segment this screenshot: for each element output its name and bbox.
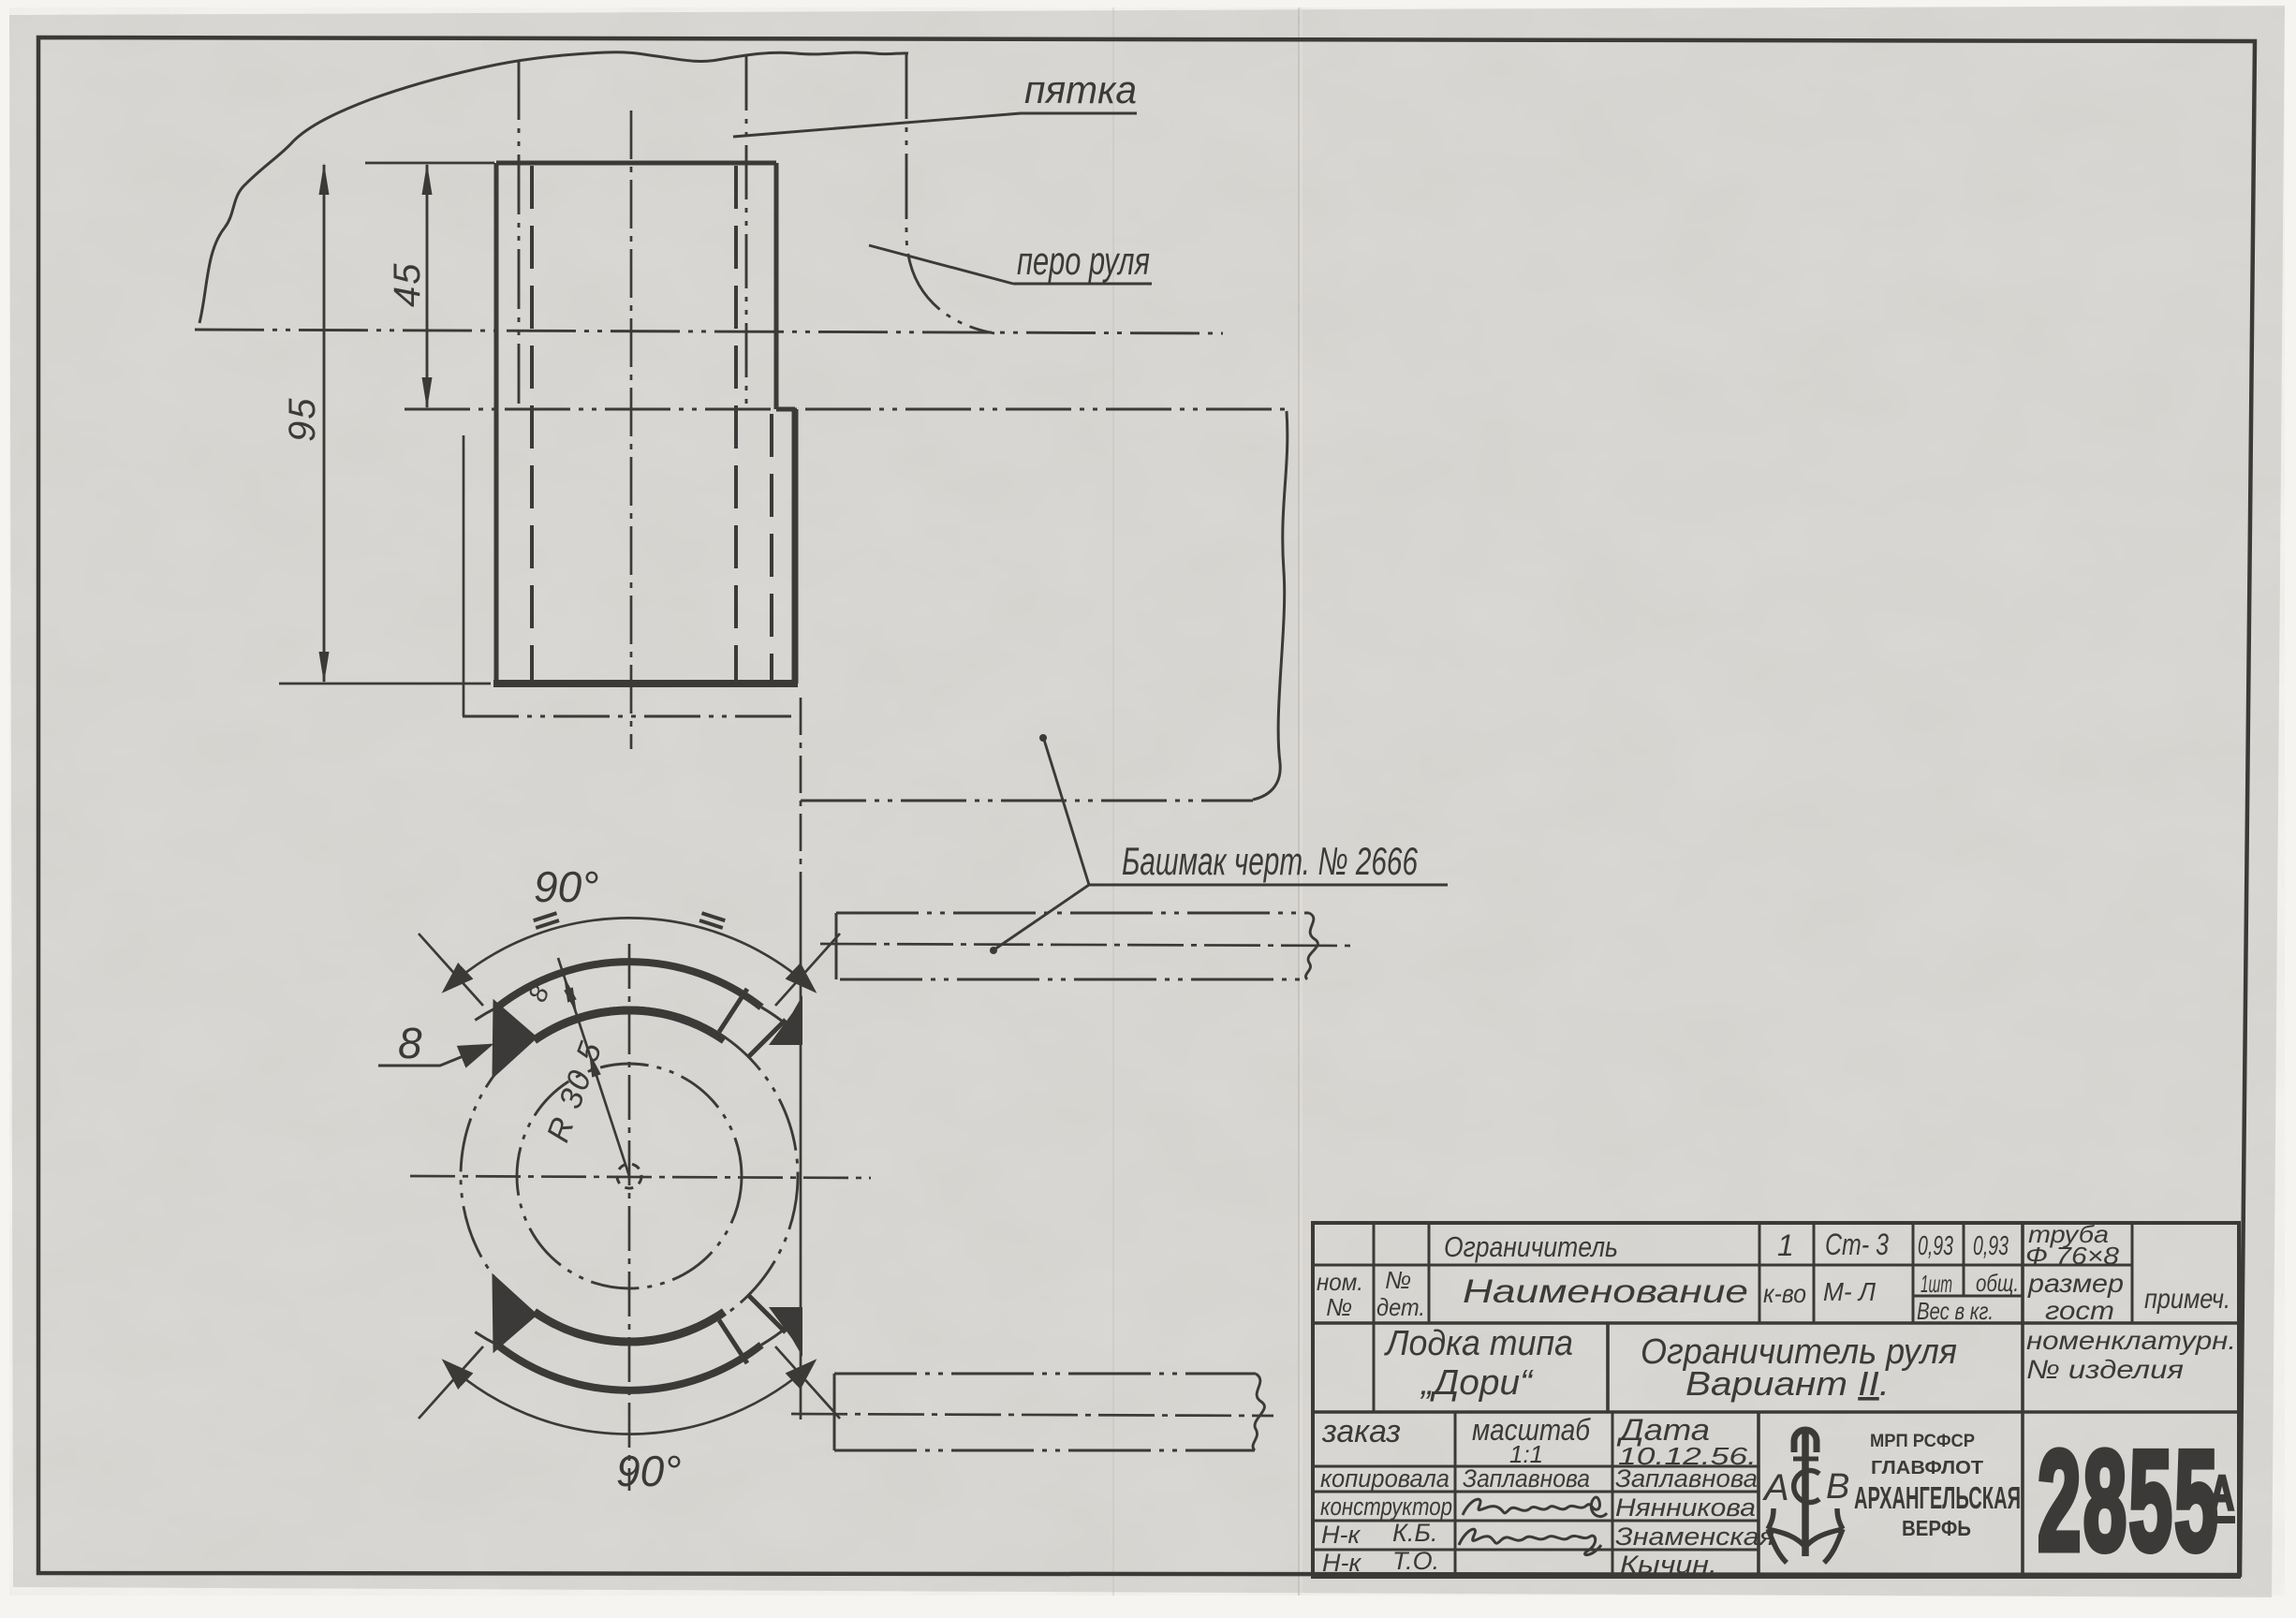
svg-text:0,93: 0,93 [1918, 1231, 1953, 1261]
svg-text:ГЛАВФЛОТ: ГЛАВФЛОТ [1871, 1458, 1983, 1478]
svg-text:Кычин.: Кычин. [1620, 1551, 1717, 1579]
svg-text:Заплавнова: Заплавнова [1463, 1464, 1590, 1493]
svg-text:90°: 90° [616, 1447, 682, 1495]
svg-text:дет.: дет. [1376, 1293, 1425, 1321]
svg-text:Знаменская: Знаменская [1615, 1522, 1774, 1551]
svg-text:К.Б.: К.Б. [1392, 1519, 1438, 1547]
svg-text:перо руля: перо руля [1017, 239, 1150, 283]
svg-text:А: А [2210, 1466, 2234, 1521]
svg-text:Н-к: Н-к [1321, 1521, 1361, 1549]
svg-text:Заплавнова: Заплавнова [1615, 1464, 1758, 1493]
svg-text:Лодка типа: Лодка типа [1383, 1324, 1573, 1363]
svg-text:А: А [1762, 1467, 1789, 1508]
svg-text:ном.: ном. [1317, 1268, 1363, 1296]
svg-text:примеч.: примеч. [2144, 1284, 2230, 1315]
svg-text:Наименование: Наименование [1463, 1273, 1748, 1310]
svg-text:Н-к: Н-к [1322, 1549, 1361, 1577]
svg-text:Вариант II.: Вариант II. [1685, 1364, 1890, 1403]
svg-text:конструктор: конструктор [1320, 1493, 1452, 1521]
svg-text:заказ: заказ [1321, 1414, 1401, 1449]
svg-text:Т.О.: Т.О. [1392, 1547, 1439, 1575]
svg-text:№ изделия: № изделия [2026, 1355, 2184, 1384]
svg-text:копировала: копировала [1320, 1464, 1450, 1493]
svg-text:гост: гост [2045, 1296, 2114, 1325]
svg-text:Ст- 3: Ст- 3 [1825, 1228, 1889, 1261]
svg-text:к-во: к-во [1763, 1279, 1806, 1308]
svg-text:Вес в кг.: Вес в кг. [1917, 1297, 1994, 1325]
svg-text:Ограничитель: Ограничитель [1444, 1230, 1618, 1263]
svg-text:Ф 76×8: Ф 76×8 [2025, 1242, 2120, 1270]
svg-text:Башмак черт. № 2666: Башмак черт. № 2666 [1122, 839, 1418, 883]
svg-text:0,93: 0,93 [1973, 1231, 2009, 1261]
svg-text:1шт: 1шт [1921, 1270, 1952, 1298]
svg-text:пятка: пятка [1024, 67, 1137, 111]
svg-text:Нянникова: Нянникова [1615, 1493, 1756, 1522]
svg-text:размер: размер [2027, 1269, 2124, 1298]
svg-text:2855: 2855 [2038, 1420, 2220, 1580]
svg-text:АРХАНГЕЛЬСКАЯ: АРХАНГЕЛЬСКАЯ [1854, 1480, 2021, 1515]
svg-text:95: 95 [282, 397, 323, 443]
svg-text:М- Л: М- Л [1823, 1277, 1877, 1306]
svg-text:„Дори“: „Дори“ [1420, 1363, 1534, 1403]
svg-text:90°: 90° [534, 862, 599, 911]
svg-text:1: 1 [1777, 1228, 1794, 1262]
svg-text:номенклатурн.: номенклатурн. [2026, 1326, 2236, 1355]
svg-text:В: В [1826, 1467, 1849, 1507]
svg-text:45: 45 [387, 262, 428, 308]
svg-text:№: № [1326, 1293, 1352, 1321]
svg-text:8: 8 [398, 1019, 422, 1067]
svg-text:МРП РСФСР: МРП РСФСР [1870, 1432, 1975, 1451]
svg-text:ВЕРФЬ: ВЕРФЬ [1902, 1516, 1971, 1540]
svg-text:№: № [1385, 1266, 1411, 1294]
svg-text:общ.: общ. [1976, 1269, 2019, 1297]
